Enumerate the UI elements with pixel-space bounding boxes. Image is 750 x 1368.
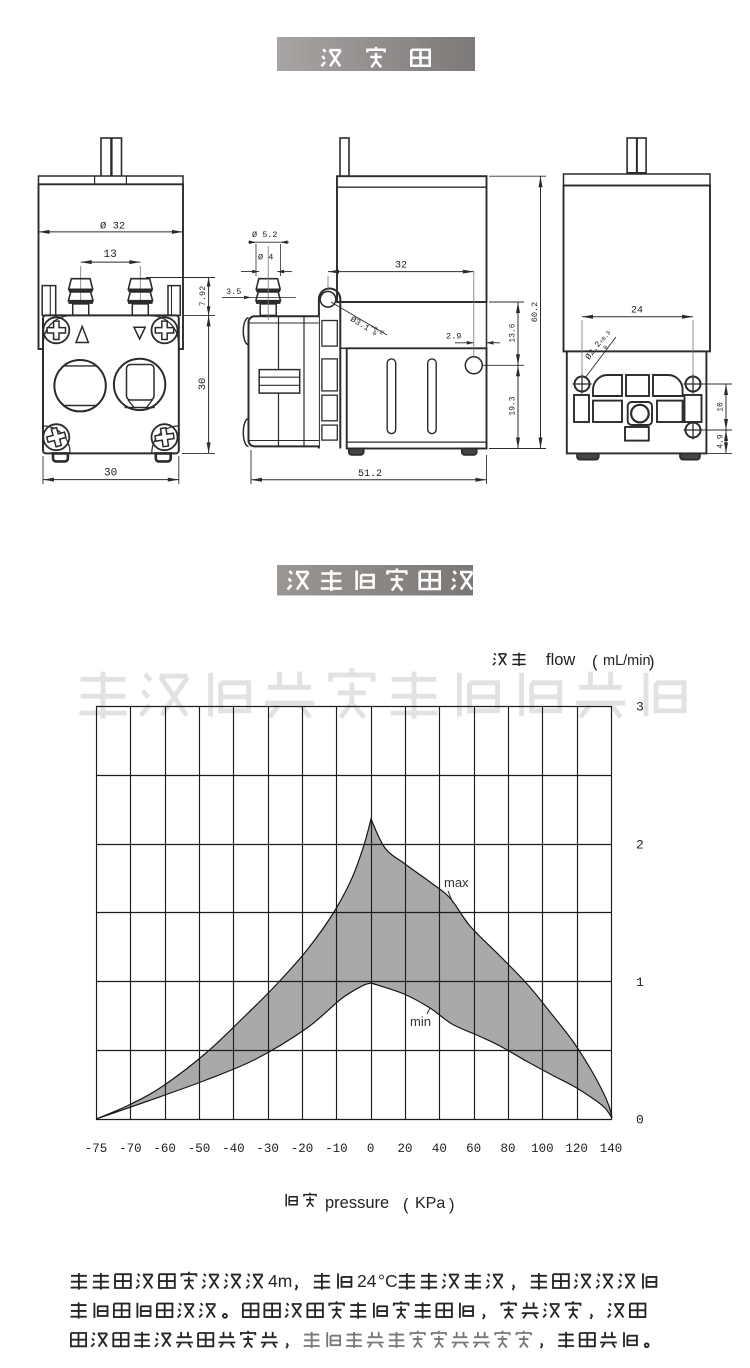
svg-text:24: 24 [357, 1271, 377, 1291]
svg-text:KPa: KPa [415, 1195, 445, 1212]
svg-text:(: ( [403, 1196, 409, 1214]
svg-text:-60: -60 [153, 1142, 176, 1156]
svg-text:2: 2 [636, 838, 644, 853]
svg-text:100: 100 [531, 1142, 554, 1156]
svg-text:-70: -70 [119, 1142, 142, 1156]
svg-text:4m: 4m [268, 1271, 292, 1291]
svg-text:120: 120 [565, 1142, 588, 1156]
svg-text:4.9: 4.9 [717, 434, 726, 449]
svg-text:30: 30 [197, 378, 209, 391]
svg-text:20: 20 [397, 1142, 412, 1156]
svg-text:mL/min: mL/min [603, 653, 651, 669]
svg-text:140: 140 [600, 1142, 623, 1156]
svg-text:10: 10 [717, 402, 726, 412]
svg-text:51.2: 51.2 [358, 469, 382, 480]
svg-text:60.2: 60.2 [530, 302, 540, 322]
svg-text:min: min [410, 1014, 431, 1029]
svg-text:-40: -40 [222, 1142, 245, 1156]
svg-text:3.5: 3.5 [226, 287, 241, 297]
svg-text:13.6: 13.6 [509, 323, 518, 342]
svg-text:24: 24 [631, 306, 643, 317]
svg-text:Ø 32: Ø 32 [100, 221, 125, 233]
svg-text:Ø3.1: Ø3.1 [348, 314, 371, 333]
svg-text:Ø 4: Ø 4 [258, 253, 273, 263]
svg-text:-75: -75 [85, 1142, 108, 1156]
svg-text:-20: -20 [291, 1142, 314, 1156]
svg-text:max: max [444, 875, 469, 890]
svg-text:60: 60 [466, 1142, 481, 1156]
svg-text:7.92: 7.92 [198, 286, 208, 306]
svg-text:13: 13 [104, 249, 117, 261]
svg-text:0: 0 [636, 1113, 644, 1128]
svg-text:°C: °C [378, 1271, 398, 1291]
svg-text:1: 1 [636, 975, 644, 990]
svg-text:Ø 5.2: Ø 5.2 [252, 230, 278, 240]
svg-text:(: ( [592, 653, 598, 671]
svg-text:-50: -50 [188, 1142, 211, 1156]
svg-text:30: 30 [104, 468, 117, 480]
svg-text:32: 32 [395, 261, 407, 272]
svg-text:-30: -30 [256, 1142, 279, 1156]
svg-text:3: 3 [636, 700, 644, 715]
svg-text:19.3: 19.3 [509, 396, 518, 415]
svg-text:2.9: 2.9 [446, 332, 461, 342]
svg-text:): ) [649, 653, 655, 671]
svg-text:): ) [449, 1196, 455, 1214]
svg-text:flow: flow [546, 651, 575, 669]
svg-text:0: 0 [367, 1142, 375, 1156]
svg-text:-10: -10 [325, 1142, 348, 1156]
svg-text:40: 40 [432, 1142, 447, 1156]
svg-text:80: 80 [500, 1142, 515, 1156]
svg-text:pressure: pressure [325, 1194, 389, 1212]
